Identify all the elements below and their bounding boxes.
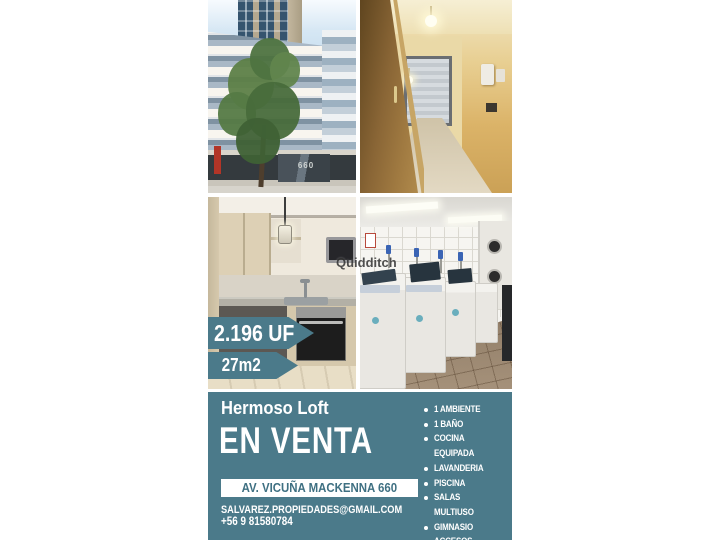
pendant-lamp [278, 225, 292, 244]
bullet-icon [424, 408, 428, 412]
bullet-icon [424, 437, 428, 441]
washing-machine [474, 283, 498, 343]
kitchen-sink [284, 297, 328, 305]
faucet [304, 281, 307, 298]
feature-item: SALAS MULTIUSO [424, 491, 512, 520]
sale-status: EN VENTA [219, 420, 373, 462]
feature-item: LAVANDERIA [424, 462, 512, 477]
wall-notice [365, 233, 376, 248]
address-bar: AV. VICUÑA MACKENNA 660 [221, 479, 418, 497]
washer-control-panel [360, 285, 400, 293]
bullet-icon [424, 496, 428, 500]
washer-lid-open [409, 261, 441, 282]
hose [440, 259, 442, 273]
price-value: 2.196 UF [208, 320, 294, 347]
area-value: 27m2 [208, 355, 261, 376]
photo-laundry-room [360, 197, 512, 389]
contact-phone: +56 9 81580784 [221, 516, 293, 528]
water-hookup [438, 250, 443, 259]
feature-item: PISCINA [424, 477, 512, 492]
light-switch [486, 103, 497, 112]
sidewalk [208, 186, 356, 193]
backsplash [219, 275, 356, 297]
watermark-text: Quidditch [336, 255, 397, 270]
real-estate-flyer: 660 [208, 0, 512, 540]
dryer-door [487, 239, 502, 254]
intercom-panel [496, 69, 505, 82]
tree-foliage [236, 118, 280, 164]
bullet-icon [424, 526, 428, 530]
building-number-sign: 660 [292, 160, 320, 171]
photo-building-exterior: 660 [208, 0, 356, 193]
listing-title: Hermoso Loft [221, 398, 329, 419]
water-hookup [458, 252, 463, 261]
feature-item: 1 AMBIENTE [424, 403, 512, 418]
contact-email: SALVAREZ.PROPIEDADES@GMAIL.COM [221, 504, 402, 516]
feature-item: ACCESOS CONTROLADOS [424, 535, 512, 540]
light-bulb [425, 15, 437, 27]
bullet-icon [424, 423, 428, 427]
washing-machine [444, 281, 476, 357]
dryer-door [487, 269, 502, 284]
oven-control-panel [296, 307, 346, 318]
washer-logo [372, 317, 379, 324]
address-text: AV. VICUÑA MACKENNA 660 [242, 479, 398, 497]
upper-cabinets-left [219, 213, 271, 275]
washer-logo [452, 309, 459, 316]
door-handle [394, 86, 397, 103]
washer-logo [416, 315, 423, 322]
washer-lid-open [447, 268, 472, 284]
feature-item: GIMNASIO [424, 521, 512, 536]
building-glass-column [322, 30, 356, 170]
bullet-icon [424, 482, 428, 486]
street-banner [214, 146, 221, 174]
oven-handle [299, 321, 343, 324]
water-hookup [414, 248, 419, 257]
pendant-cord [284, 197, 286, 227]
photo-apartment-hallway [360, 0, 512, 193]
flyer-canvas: 660 [0, 0, 720, 540]
faucet-spout [300, 279, 310, 283]
bullet-icon [424, 467, 428, 471]
water-hookup [386, 245, 391, 254]
washer-control-panel [406, 285, 442, 292]
feature-item: COCINA EQUIPADA [424, 432, 512, 461]
feature-list: 1 AMBIENTE 1 BAÑO COCINA EQUIPADA LAVAND… [424, 403, 512, 540]
dark-doorway [502, 285, 512, 361]
feature-item: 1 BAÑO [424, 418, 512, 433]
info-panel: Hermoso Loft EN VENTA AV. VICUÑA MACKENN… [208, 392, 512, 540]
intercom-handset [481, 64, 494, 85]
